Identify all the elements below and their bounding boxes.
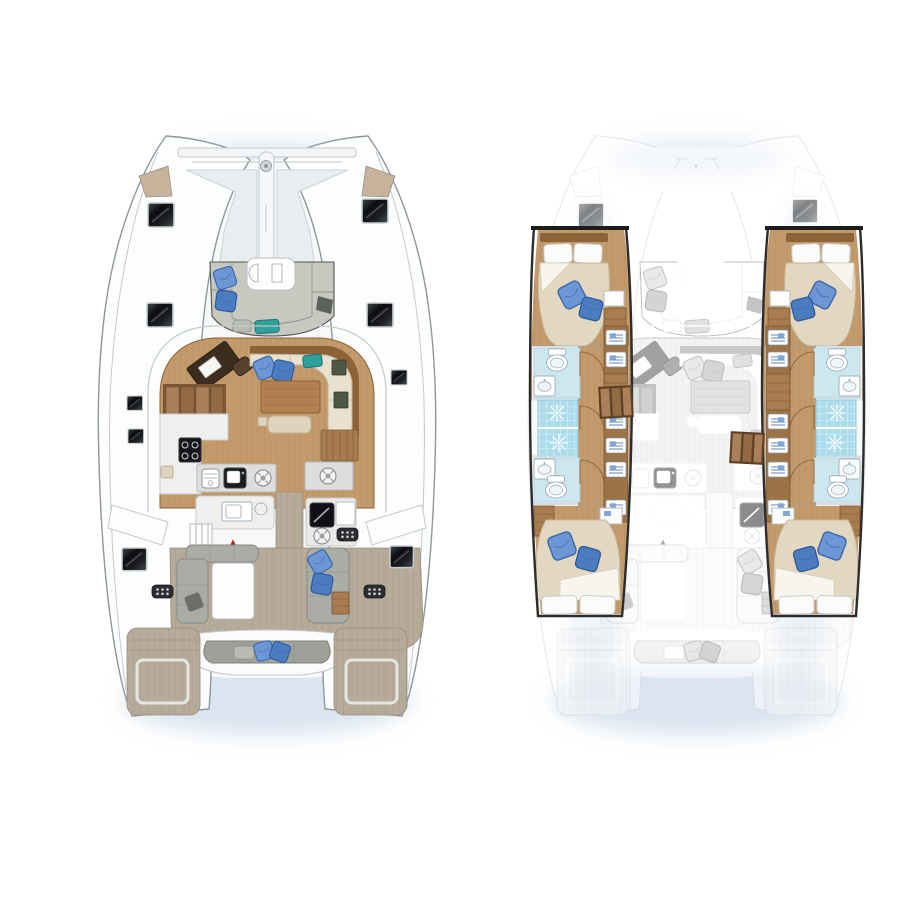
cockpit-lounge-port [177,545,258,623]
blue-pillow [578,296,603,321]
vent-grille-icon [152,585,173,598]
stern-shadow-left-boat [198,676,338,718]
catamaran-floorplans [0,0,900,900]
bathroom-zone [531,326,629,522]
galley-locker [336,502,355,525]
shower-drain-icon [550,434,568,452]
deck-hatch-small [391,370,407,385]
saloon [148,326,386,512]
dishwasher-icon [202,469,219,488]
deck-hatch-small [128,429,144,443]
companionway-steps-starboard [729,431,765,465]
speaker-box [332,360,346,375]
hull-interior [530,228,632,616]
forward-cockpit [210,258,334,336]
ottoman [268,416,311,433]
outdoor-galley-module [306,498,358,546]
cooktop [179,438,201,462]
galley-stool [161,466,173,478]
speaker-box [334,392,348,408]
deck-hatch [122,548,147,571]
companionway-steps-port [598,385,634,419]
stern-shadow-right-boat [628,676,768,718]
wardrobe-column [604,326,628,522]
hob-burner-icon [255,470,271,486]
vent-grille-icon [337,528,358,541]
white-pillow [544,243,573,263]
aft-bench [181,630,353,675]
shower [531,400,578,456]
furler-pin [264,164,268,168]
deck-hatch [362,199,388,223]
aft-cabin [534,506,622,615]
aft-galley-counters [197,462,353,492]
white-pillow [542,595,578,614]
side-stool [258,417,267,426]
cabin-locker [604,291,624,306]
door-threshold [276,492,303,548]
toilet-icon [547,349,568,371]
cabinet-glyph [604,511,611,516]
deck-hatch [390,546,413,568]
deck-plan-boat [98,136,435,716]
deck-hatch [367,303,393,327]
wardrobe-shelf-icon [606,462,626,477]
forward-table [247,258,295,290]
vent-grille-icon [364,585,385,598]
blue-pillow [271,359,295,383]
shower-drain-icon [548,404,566,422]
hob-burner-icon [314,528,330,544]
wardrobe-shelf-icon [606,330,626,345]
blue-pillow [215,290,238,313]
hull-interior-starboard [762,228,864,616]
cockpit-lounge-starboard [306,548,349,623]
galley-sink-icon [224,468,246,488]
toilet-icon [546,476,567,498]
wardrobe-shelf-icon [606,352,626,367]
swim-platform-starboard [334,628,407,715]
blue-pillow [575,546,602,573]
wardrobe-shelf-icon [606,438,626,453]
teal-cushion [302,354,322,368]
white-pillow [573,243,602,263]
white-pillow [580,595,616,614]
gray-cushion [234,646,254,659]
aft-saloon-seats [321,430,358,461]
deck-hatch-small [127,396,143,410]
swim-platform-port [127,628,200,715]
deck-hatch [148,203,174,227]
hob-burner-icon [320,468,336,484]
deck-hatch [147,303,173,327]
cockpit-step [332,592,349,614]
blue-pillow [310,572,333,595]
headboard-trim [540,233,608,242]
washbasin-icon [534,376,555,396]
cockpit-table [212,563,254,619]
